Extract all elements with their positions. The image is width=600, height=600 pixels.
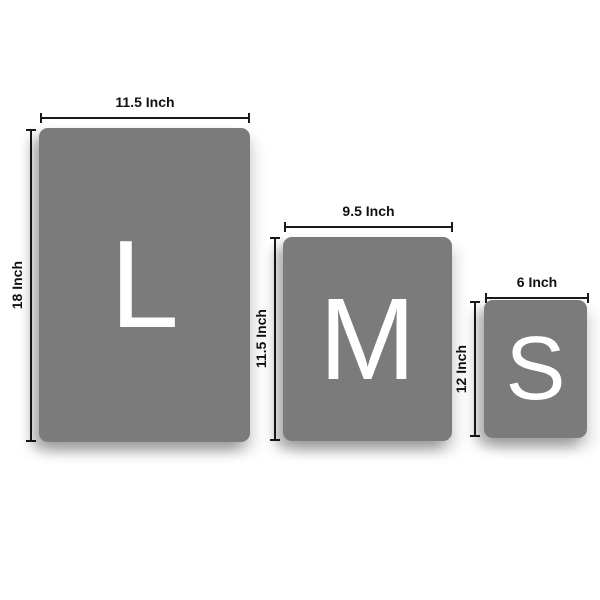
height-dimension-medium: 11.5 Inch [252,237,280,441]
width-label-medium: 9.5 Inch [284,203,453,219]
height-dimension-line-small [470,301,480,437]
width-dimension-line-medium [284,222,453,232]
width-dimension-small: 6 Inch [485,274,589,303]
width-dimension-medium: 9.5 Inch [284,203,453,232]
size-letter-medium: M [319,281,416,397]
size-panel-large: L [39,128,250,442]
width-label-large: 11.5 Inch [40,94,250,110]
height-dimension-small: 12 Inch [452,301,480,437]
width-dimension-large: 11.5 Inch [40,94,250,123]
size-letter-small: S [505,324,565,414]
height-label-small: 12 Inch [453,345,469,393]
size-panel-medium: M [283,237,452,441]
height-dimension-large: 18 Inch [8,129,36,442]
height-dimension-line-medium [270,237,280,441]
height-label-wrap-medium: 11.5 Inch [252,237,270,441]
size-letter-large: L [110,223,179,347]
size-panel-small: S [484,300,587,438]
size-comparison-diagram: 11.5 Inch 18 Inch L 9.5 Inch 11.5 Inch M… [0,0,600,600]
height-label-wrap-large: 18 Inch [8,129,26,442]
height-label-large: 18 Inch [9,261,25,309]
height-dimension-line-large [26,129,36,442]
width-label-small: 6 Inch [485,274,589,290]
width-dimension-line-large [40,113,250,123]
height-label-medium: 11.5 Inch [253,309,269,368]
height-label-wrap-small: 12 Inch [452,301,470,437]
